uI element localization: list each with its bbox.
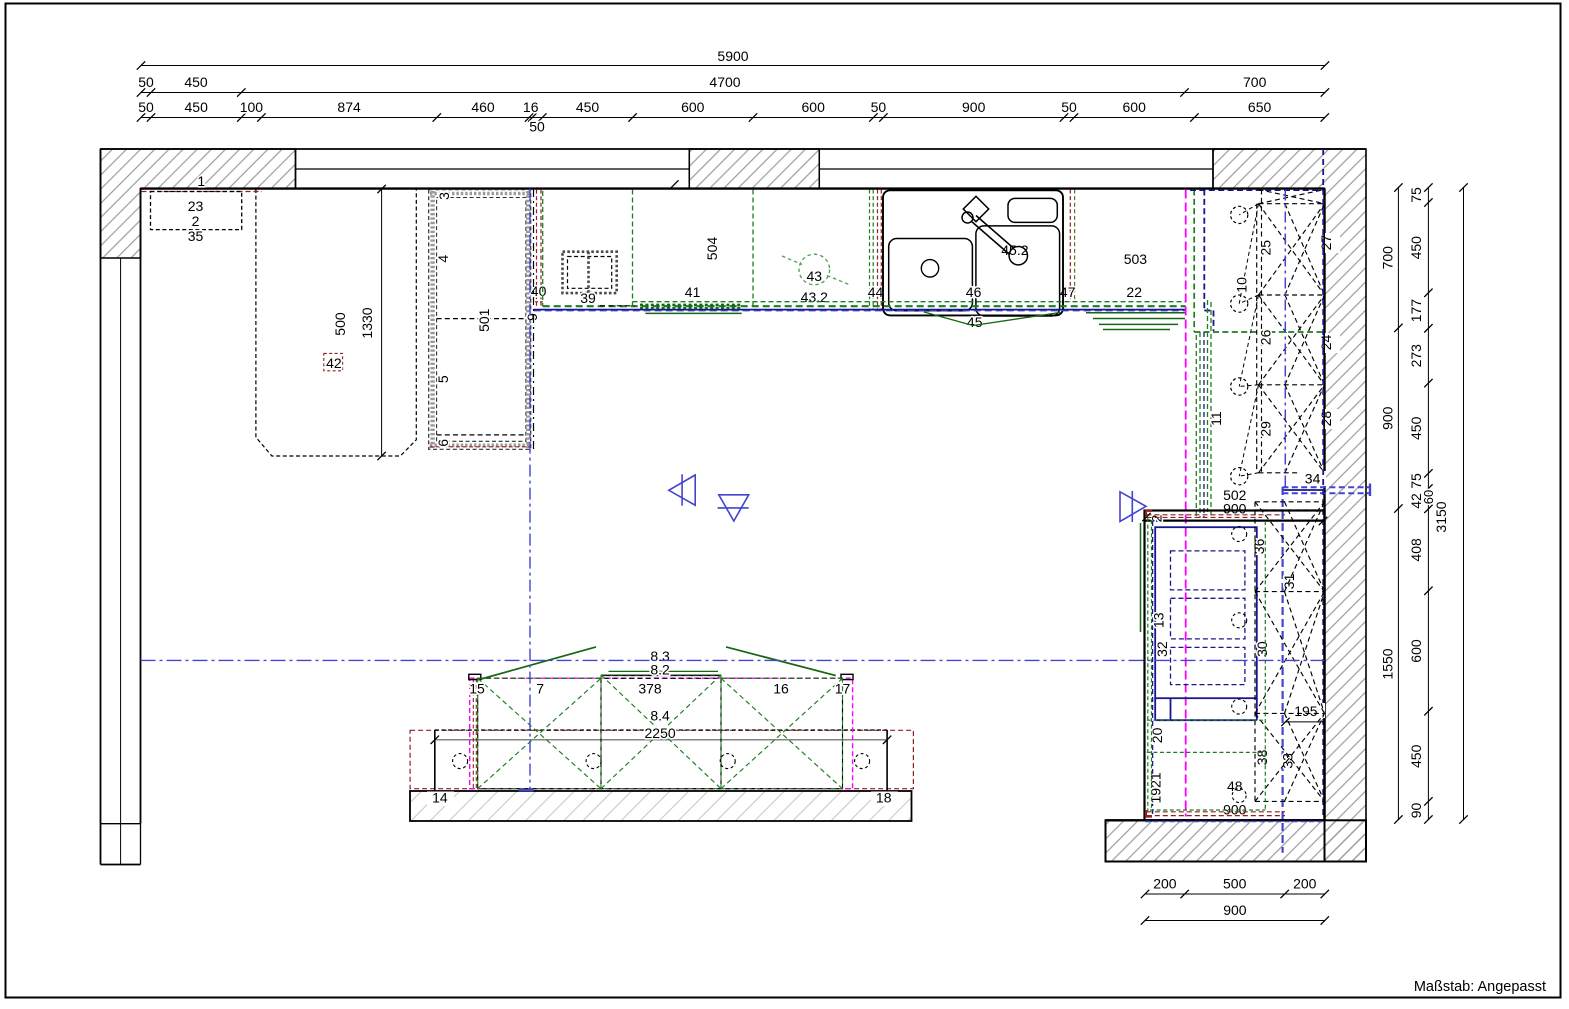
svg-text:17: 17	[835, 681, 851, 697]
svg-text:100: 100	[240, 99, 264, 115]
svg-text:18: 18	[876, 789, 892, 805]
svg-text:16: 16	[773, 681, 789, 697]
svg-text:450: 450	[184, 74, 208, 90]
svg-text:8.4: 8.4	[650, 708, 670, 724]
svg-text:900: 900	[962, 99, 986, 115]
svg-text:14: 14	[432, 789, 448, 805]
svg-text:200: 200	[1153, 876, 1177, 892]
svg-text:900: 900	[1223, 501, 1247, 517]
svg-text:50: 50	[871, 99, 887, 115]
svg-text:408: 408	[1408, 538, 1424, 562]
svg-text:75: 75	[1408, 187, 1424, 203]
svg-text:500: 500	[1223, 876, 1247, 892]
svg-text:600: 600	[802, 99, 826, 115]
svg-text:600: 600	[1408, 639, 1424, 663]
svg-text:28: 28	[1318, 411, 1334, 427]
svg-text:24: 24	[1318, 335, 1334, 351]
svg-text:30: 30	[1254, 641, 1270, 657]
svg-text:25: 25	[1257, 240, 1273, 256]
svg-text:34: 34	[1305, 471, 1321, 487]
svg-text:900: 900	[1223, 902, 1247, 918]
svg-text:15: 15	[469, 681, 485, 697]
svg-text:700: 700	[1380, 246, 1396, 270]
svg-text:75: 75	[1408, 473, 1424, 489]
svg-text:Maßstab: Angepasst: Maßstab: Angepasst	[1414, 979, 1546, 995]
svg-text:50: 50	[138, 99, 154, 115]
svg-text:503: 503	[1124, 251, 1148, 267]
svg-text:13: 13	[1151, 612, 1167, 628]
svg-text:36: 36	[1251, 538, 1267, 554]
svg-text:195: 195	[1294, 703, 1318, 719]
svg-text:200: 200	[1293, 876, 1317, 892]
svg-text:44: 44	[868, 284, 884, 300]
svg-text:650: 650	[1248, 99, 1272, 115]
svg-text:273: 273	[1408, 344, 1424, 368]
svg-text:5900: 5900	[717, 48, 748, 64]
svg-text:450: 450	[1408, 416, 1424, 440]
svg-text:1921: 1921	[1147, 772, 1163, 803]
svg-text:8.2: 8.2	[650, 661, 670, 677]
svg-text:29: 29	[1257, 421, 1273, 437]
svg-text:38: 38	[1254, 749, 1270, 765]
svg-text:48: 48	[1227, 778, 1243, 794]
svg-text:1: 1	[197, 173, 205, 189]
svg-text:32: 32	[1154, 641, 1170, 657]
svg-text:500: 500	[332, 312, 348, 336]
svg-text:42: 42	[326, 355, 342, 371]
svg-text:1550: 1550	[1380, 648, 1396, 679]
svg-text:450: 450	[1408, 744, 1424, 768]
svg-text:177: 177	[1408, 299, 1424, 323]
svg-text:9: 9	[524, 313, 540, 321]
svg-text:460: 460	[471, 99, 495, 115]
svg-text:50: 50	[529, 119, 545, 135]
svg-text:39: 39	[580, 290, 596, 306]
svg-text:2250: 2250	[645, 725, 676, 741]
svg-text:50: 50	[138, 74, 154, 90]
svg-text:6: 6	[435, 439, 451, 447]
svg-text:450: 450	[185, 99, 209, 115]
svg-text:600: 600	[1123, 99, 1147, 115]
svg-text:378: 378	[638, 681, 662, 697]
svg-text:50: 50	[1061, 99, 1077, 115]
svg-text:22: 22	[1126, 284, 1142, 300]
svg-text:45: 45	[967, 314, 983, 330]
svg-text:1330: 1330	[359, 307, 375, 338]
svg-text:700: 700	[1243, 74, 1267, 90]
svg-text:41: 41	[685, 284, 701, 300]
svg-text:600: 600	[681, 99, 705, 115]
svg-text:26: 26	[1257, 329, 1273, 345]
svg-text:10: 10	[1234, 277, 1250, 293]
svg-text:46: 46	[966, 284, 982, 300]
svg-text:4: 4	[435, 255, 451, 263]
svg-text:27: 27	[1318, 235, 1334, 251]
svg-text:7: 7	[536, 681, 544, 697]
svg-text:501: 501	[476, 308, 492, 332]
svg-text:450: 450	[576, 99, 600, 115]
svg-text:11: 11	[1208, 411, 1224, 426]
svg-text:450: 450	[1408, 236, 1424, 260]
svg-text:2: 2	[192, 213, 200, 229]
svg-text:874: 874	[337, 99, 361, 115]
svg-text:43: 43	[807, 268, 823, 284]
svg-text:900: 900	[1380, 406, 1396, 430]
svg-text:3: 3	[436, 192, 452, 200]
svg-text:35: 35	[188, 228, 204, 244]
svg-text:90: 90	[1408, 803, 1424, 819]
svg-text:3150: 3150	[1433, 501, 1449, 532]
svg-text:504: 504	[704, 237, 720, 261]
svg-text:4700: 4700	[709, 74, 740, 90]
svg-text:5: 5	[435, 375, 451, 383]
svg-text:43.2: 43.2	[801, 289, 828, 305]
svg-text:23: 23	[188, 198, 204, 214]
svg-text:16: 16	[523, 99, 539, 115]
